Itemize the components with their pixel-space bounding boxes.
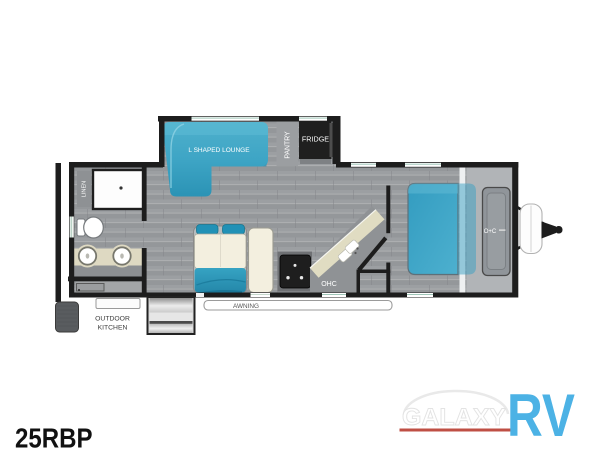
- svg-text:OHC: OHC: [321, 281, 337, 288]
- svg-text:KITCHEN: KITCHEN: [98, 325, 128, 332]
- svg-text:25RBP: 25RBP: [15, 423, 93, 454]
- svg-text:OUTDOOR: OUTDOOR: [95, 316, 130, 323]
- svg-text:L SHAPED LOUNGE: L SHAPED LOUNGE: [188, 147, 250, 154]
- svg-text:GALAXY: GALAXY: [402, 404, 506, 431]
- svg-text:RV: RV: [507, 382, 575, 449]
- svg-text:PANTRY: PANTRY: [284, 131, 291, 159]
- svg-text:O+C: O+C: [484, 229, 497, 235]
- svg-text:AWNING: AWNING: [233, 303, 259, 310]
- svg-text:FRIDGE: FRIDGE: [302, 135, 329, 144]
- svg-text:LINEN: LINEN: [81, 181, 87, 197]
